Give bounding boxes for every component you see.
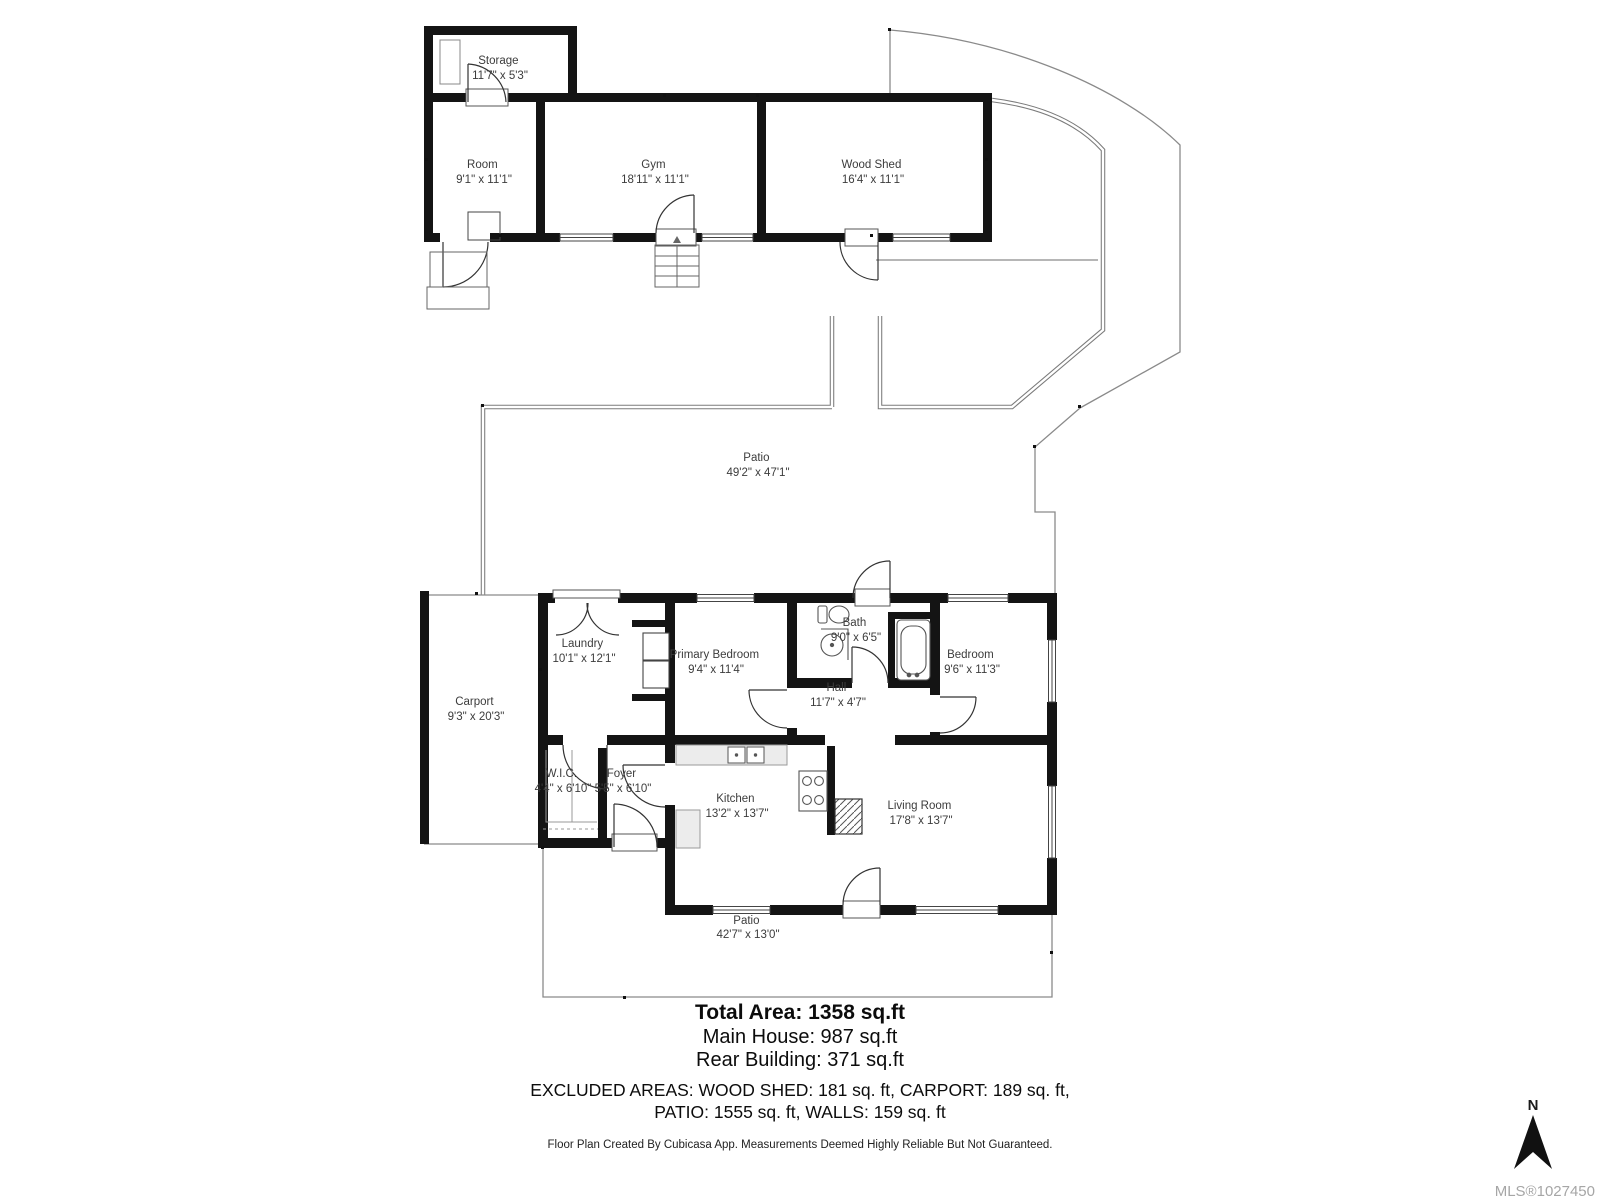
bedroom-door-icon (940, 697, 976, 733)
total-area-text: Total Area: 1358 sq.ft (0, 1001, 1600, 1025)
living-room-side-window (1049, 786, 1056, 858)
main-house-area-text: Main House: 987 sq.ft (0, 1026, 1600, 1049)
label-kitchen: Kitchen 13'2" x 13'7" (705, 793, 768, 820)
storage-shelf-icon (440, 40, 460, 84)
rear-exterior-door-icon (443, 242, 488, 287)
gym-door-icon (656, 195, 694, 233)
label-gym: Gym 18'11" x 11'1" (621, 159, 689, 186)
rear-building (424, 26, 992, 309)
label-living-room: Living Room 17'8" x 13'7" (887, 800, 954, 827)
wood-shed-door-icon (840, 242, 878, 280)
primary-bedroom-door-icon (749, 690, 787, 728)
main-house-walls (538, 593, 1057, 915)
excluded-areas-line2: PATIO: 1555 sq. ft, WALLS: 159 sq. ft (0, 1102, 1600, 1123)
rear-building-area-text: Rear Building: 371 sq.ft (0, 1049, 1600, 1072)
disclaimer-text: Floor Plan Created By Cubicasa App. Meas… (0, 1139, 1600, 1151)
stove-icon (799, 771, 827, 811)
primary-bedroom-window (697, 595, 754, 602)
kitchen-bottom-window (713, 907, 770, 914)
entry-steps-icon (427, 252, 489, 309)
label-patio-upper: Patio 49'2" x 47'1" (726, 452, 789, 479)
upper-patio-boundary (483, 100, 1103, 595)
excluded-areas-line1: EXCLUDED AREAS: WOOD SHED: 181 sq. ft, C… (0, 1080, 1600, 1101)
label-carport: Carport 9'3" x 20'3" (448, 696, 505, 723)
survey-point-markers (425, 28, 1081, 999)
main-house (538, 561, 1058, 918)
bathtub-icon (897, 620, 930, 680)
living-room-patio-door-icon (843, 868, 880, 905)
label-wood-shed: Wood Shed 16'4" x 11'1" (841, 159, 904, 186)
bedroom-side-window (1049, 640, 1056, 702)
north-arrow-icon (1500, 1113, 1566, 1173)
gym-window-left (560, 234, 613, 241)
laundry-appliances-icon (643, 633, 669, 688)
gym-window-right (702, 234, 753, 241)
property-boundary-lines (876, 30, 1180, 593)
label-room: Room 9'1" x 11'1" (456, 159, 512, 186)
living-room-bottom-window (916, 907, 998, 914)
room-labels: Storage 11'7" x 5'3" Room 9'1" x 11'1" G… (448, 55, 1000, 941)
north-compass: N (1500, 1098, 1566, 1178)
label-primary-bedroom: Primary Bedroom 9'4" x 11'4" (670, 649, 763, 676)
door-thresholds (466, 89, 878, 246)
label-laundry: Laundry 10'1" x 12'1" (552, 638, 615, 665)
lower-patio-boundary (543, 848, 1052, 997)
label-patio-lower: Patio 42'7" x 13'0" (716, 915, 779, 941)
chimney-icon (835, 799, 862, 834)
wood-shed-window (893, 234, 950, 241)
kitchen-fridge-icon (676, 810, 700, 848)
north-label: N (1500, 1098, 1566, 1113)
boundary-outer-curve (890, 30, 1180, 408)
main-house-openings (555, 592, 1058, 916)
mls-number: MLS®1027450 (1495, 1183, 1595, 1200)
carport-structure (420, 591, 429, 844)
kitchen-counter-icon (676, 745, 787, 765)
boundary-to-house (1035, 408, 1080, 593)
label-storage: Storage 11'7" x 5'3" (472, 55, 528, 82)
floor-plan-page: Storage 11'7" x 5'3" Room 9'1" x 11'1" G… (0, 0, 1600, 1200)
label-bedroom: Bedroom 9'6" x 11'3" (944, 649, 1000, 676)
laundry-double-door-icon (556, 603, 619, 635)
bedroom-top-window (948, 595, 1008, 602)
